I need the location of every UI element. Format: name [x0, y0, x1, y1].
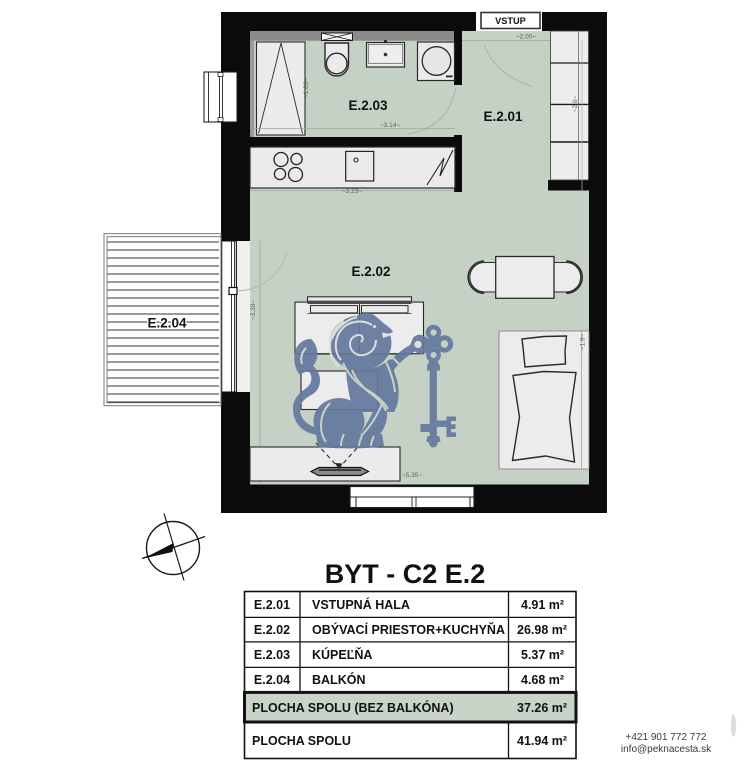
svg-text:info@peknacesta.sk: info@peknacesta.sk	[621, 744, 712, 755]
svg-text:37.26 m²: 37.26 m²	[517, 701, 567, 715]
svg-text:E.2.02: E.2.02	[351, 264, 390, 279]
svg-text:VSTUPNÁ HALA: VSTUPNÁ HALA	[312, 597, 410, 612]
svg-text:~1.83~: ~1.83~	[303, 78, 310, 98]
svg-text:+421 901 772 772: +421 901 772 772	[626, 732, 707, 743]
svg-text:KÚPEĽŇA: KÚPEĽŇA	[312, 647, 372, 662]
svg-text:5.37 m²: 5.37 m²	[521, 648, 564, 662]
svg-text:4.68 m²: 4.68 m²	[521, 673, 564, 687]
svg-text:E.2.02: E.2.02	[254, 623, 290, 637]
svg-text:4.91 m²: 4.91 m²	[521, 598, 564, 612]
svg-text:E.2.03: E.2.03	[348, 98, 388, 113]
svg-text:~3.30~: ~3.30~	[250, 300, 257, 320]
svg-text:41.94 m²: 41.94 m²	[517, 734, 567, 748]
svg-text:26.98 m²: 26.98 m²	[517, 623, 567, 637]
svg-text:~1.9~: ~1.9~	[580, 333, 587, 350]
svg-text:PLOCHA SPOLU (BEZ BALKÓNA): PLOCHA SPOLU (BEZ BALKÓNA)	[252, 700, 454, 715]
svg-text:E.2.03: E.2.03	[254, 648, 290, 662]
svg-text:PLOCHA SPOLU: PLOCHA SPOLU	[252, 734, 351, 748]
svg-text:~2.6~: ~2.6~	[572, 95, 579, 112]
svg-text:~2.00~: ~2.00~	[516, 34, 536, 41]
svg-text:~3.14~: ~3.14~	[380, 122, 400, 129]
svg-text:E.2.04: E.2.04	[254, 673, 290, 687]
svg-text:VSTUP: VSTUP	[495, 16, 526, 26]
svg-text:E.2.04: E.2.04	[147, 316, 187, 331]
svg-text:~5.35~: ~5.35~	[402, 472, 422, 479]
svg-text:E.2.01: E.2.01	[483, 109, 523, 124]
svg-text:E.2.01: E.2.01	[254, 598, 290, 612]
svg-text:~3.23~: ~3.23~	[342, 188, 362, 195]
svg-text:BYT - C2 E.2: BYT - C2 E.2	[325, 559, 486, 589]
svg-text:BALKÓN: BALKÓN	[312, 672, 365, 687]
svg-text:OBÝVACÍ PRIESTOR+KUCHYŇA: OBÝVACÍ PRIESTOR+KUCHYŇA	[312, 622, 505, 637]
